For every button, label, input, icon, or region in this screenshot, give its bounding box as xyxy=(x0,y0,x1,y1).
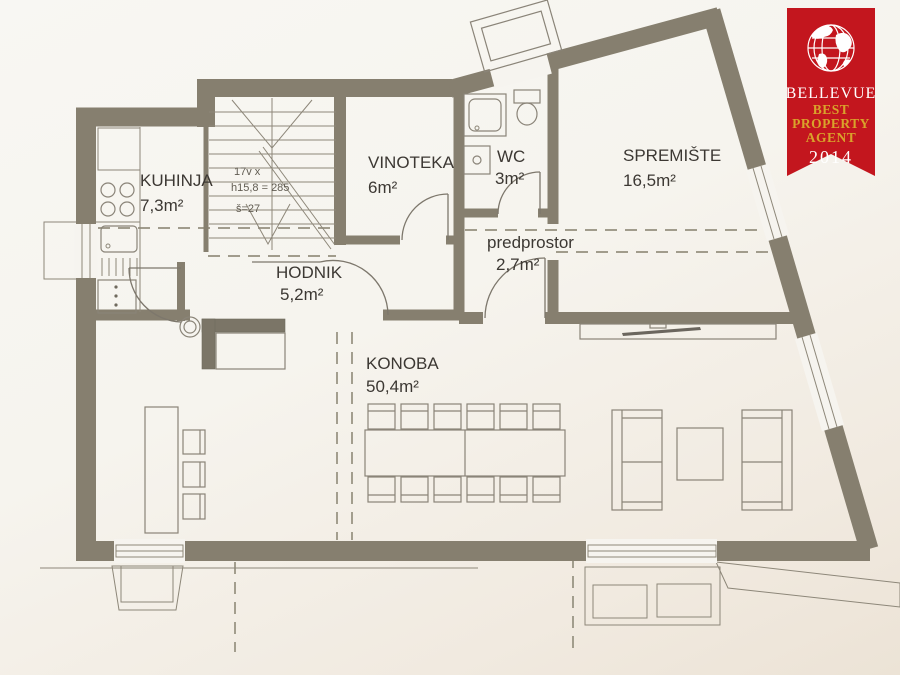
room-label: WC xyxy=(497,147,525,166)
sofa-right xyxy=(742,410,792,510)
exterior-details xyxy=(40,222,900,625)
room-konoba: KONOBA 50,4m² xyxy=(366,354,439,396)
sofa-group xyxy=(612,410,792,510)
kitchen-cabinet xyxy=(98,128,140,170)
exterior-stairs xyxy=(112,566,183,610)
room-area: 50,4m² xyxy=(366,377,419,396)
room-area: 2,7m² xyxy=(496,255,540,274)
shower xyxy=(464,94,506,136)
room-spremiste: SPREMIŠTE 16,5m² xyxy=(623,146,721,190)
bar-cabinet xyxy=(216,333,285,369)
entrance-door xyxy=(470,0,561,78)
section-dashed-lines xyxy=(98,228,772,652)
room-area: 5,2m² xyxy=(280,285,324,304)
stairs-note-line1: 17v x xyxy=(234,166,261,178)
room-area: 16,5m² xyxy=(623,171,676,190)
floor-plan-drawing: KUHINJA 7,3m² VINOTEKA 6m² WC 3m² SPREMI… xyxy=(0,0,900,675)
badge-award-line2: PROPERTY xyxy=(792,116,870,131)
toilet-tank xyxy=(514,90,540,103)
sofa-left xyxy=(612,410,662,510)
room-vinoteka: VINOTEKA 6m² xyxy=(368,153,455,197)
room-kuhinja: KUHINJA 7,3m² xyxy=(140,171,213,215)
award-badge: BELLEVUE BEST PROPERTY AGENT 2014 xyxy=(786,8,877,176)
badge-year: 2014 xyxy=(809,147,853,167)
badge-award-line3: AGENT xyxy=(806,130,857,145)
room-predprostor: predprostor 2,7m² xyxy=(487,233,574,274)
coffee-table xyxy=(677,428,723,480)
kitchen-fixtures xyxy=(96,127,140,313)
room-hodnik: HODNIK 5,2m² xyxy=(276,263,343,304)
konoba-furniture xyxy=(145,317,792,533)
stove-burner xyxy=(101,202,115,216)
wall-top-slanted xyxy=(450,16,719,89)
door-vinoteka xyxy=(402,194,448,240)
stove-burner xyxy=(120,183,134,197)
badge-brand: BELLEVUE xyxy=(786,85,877,102)
room-label: SPREMIŠTE xyxy=(623,146,721,165)
kitchen-sink xyxy=(101,226,137,252)
dining-chairs-bottom xyxy=(368,477,560,502)
room-label: VINOTEKA xyxy=(368,153,455,172)
room-label: HODNIK xyxy=(276,263,343,282)
stove-burner xyxy=(101,183,115,197)
stairs-annotation: 17v x h15,8 = 285 š=27 xyxy=(231,166,289,215)
room-label: KUHINJA xyxy=(140,171,213,190)
room-wc: WC 3m² xyxy=(495,147,525,188)
tv-console xyxy=(580,324,776,339)
side-table xyxy=(145,407,178,533)
badge-award-line1: BEST xyxy=(813,102,850,117)
toilet xyxy=(517,103,537,125)
exterior-planter-box xyxy=(585,567,720,625)
dining-chairs-top xyxy=(368,404,560,429)
stairs-note-line2: h15,8 = 285 xyxy=(231,182,289,194)
room-label: predprostor xyxy=(487,233,574,252)
room-area: 6m² xyxy=(368,178,398,197)
washbasin xyxy=(464,146,490,174)
room-label: KONOBA xyxy=(366,354,439,373)
room-area: 3m² xyxy=(495,169,525,188)
terrace-slab xyxy=(716,562,900,607)
stairs-note-line3: š=27 xyxy=(236,203,260,215)
side-chairs xyxy=(183,430,205,519)
room-area: 7,3m² xyxy=(140,196,184,215)
stove-burner xyxy=(120,202,134,216)
floor-plan-page: KUHINJA 7,3m² VINOTEKA 6m² WC 3m² SPREMI… xyxy=(0,0,900,675)
